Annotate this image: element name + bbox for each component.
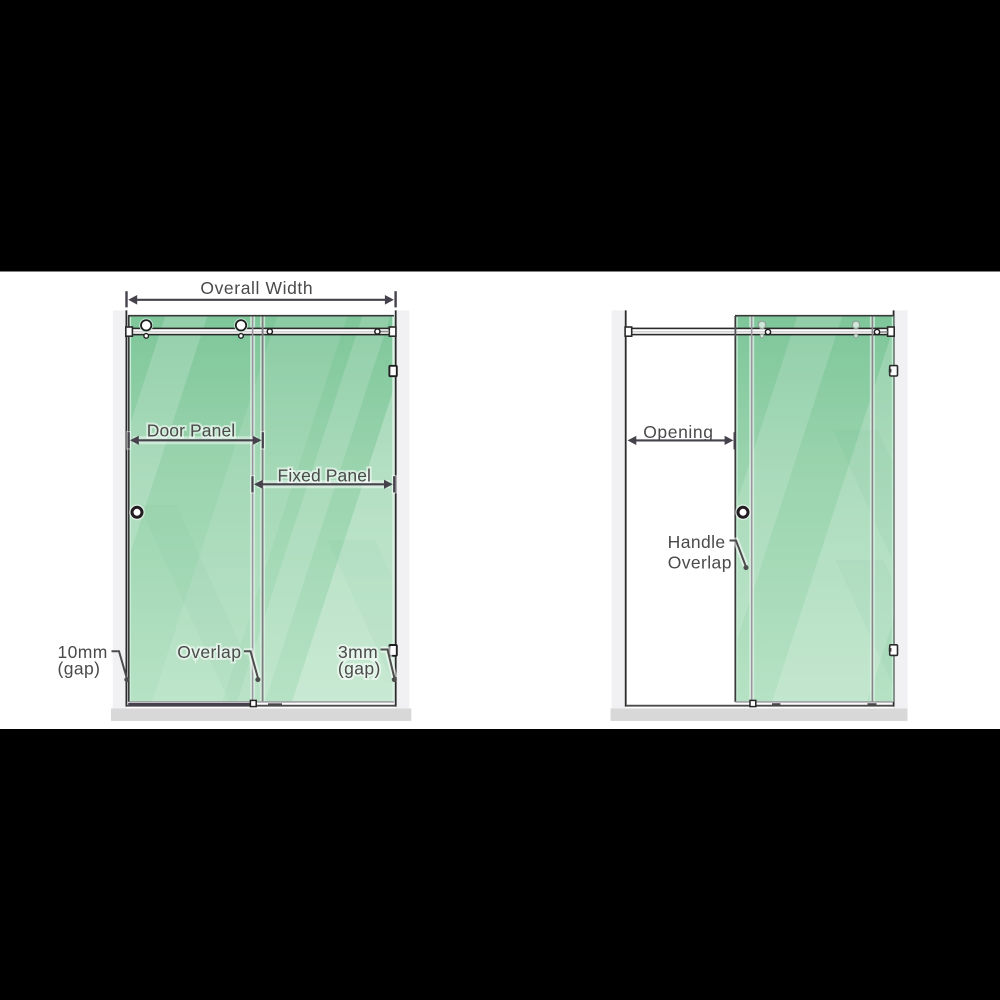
svg-text:(gap): (gap) (58, 658, 101, 678)
svg-text:Handle: Handle (668, 532, 726, 552)
svg-text:Door Panel: Door Panel (147, 421, 236, 441)
svg-text:(gap): (gap) (338, 658, 381, 678)
svg-text:Fixed Panel: Fixed Panel (278, 466, 372, 486)
svg-text:Overlap: Overlap (177, 642, 241, 662)
svg-text:Opening: Opening (643, 422, 713, 442)
svg-text:Overlap: Overlap (668, 553, 732, 573)
svg-text:Overall Width: Overall Width (200, 278, 313, 298)
